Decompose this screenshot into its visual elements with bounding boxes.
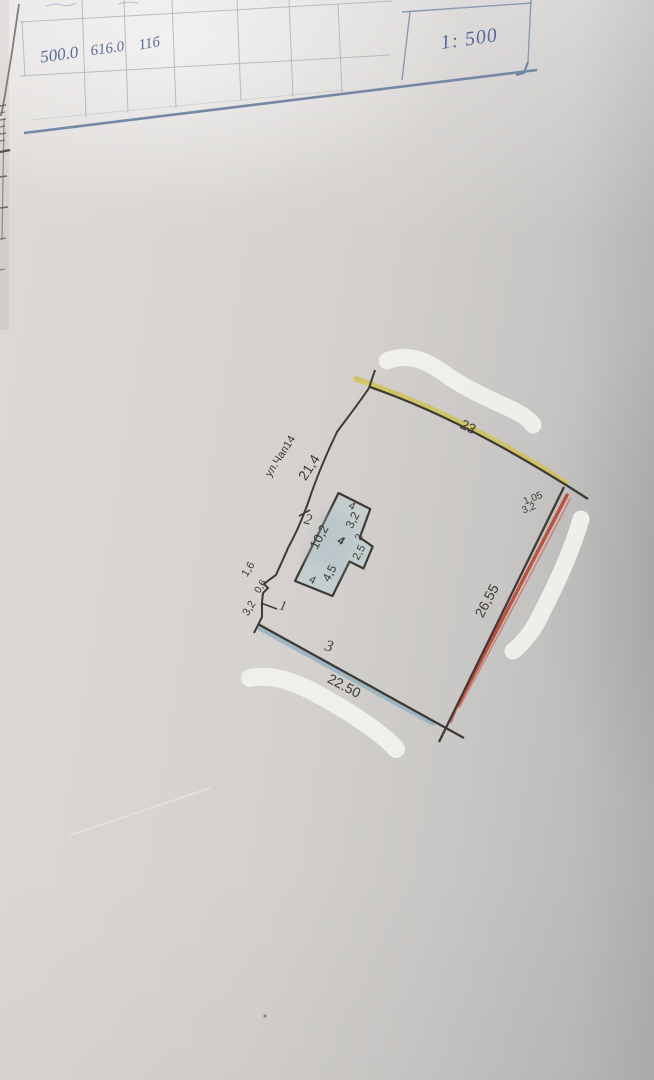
svg-text:21,4: 21,4 (295, 451, 323, 483)
svg-text:616.0: 616.0 (90, 39, 126, 60)
svg-text:26,55: 26,55 (471, 581, 502, 620)
svg-text:ул.Чап14: ул.Чап14 (263, 434, 298, 479)
svg-text:1: 500: 1: 500 (439, 24, 499, 54)
svg-text:500.0: 500.0 (39, 42, 80, 66)
svg-text:0,6: 0,6 (253, 577, 270, 595)
svg-text:1,6: 1,6 (239, 560, 257, 579)
svg-text:11б: 11б (138, 34, 162, 53)
svg-text:3: 3 (322, 637, 335, 656)
svg-text:3,2: 3,2 (240, 599, 258, 618)
svg-text:1: 1 (278, 598, 288, 614)
